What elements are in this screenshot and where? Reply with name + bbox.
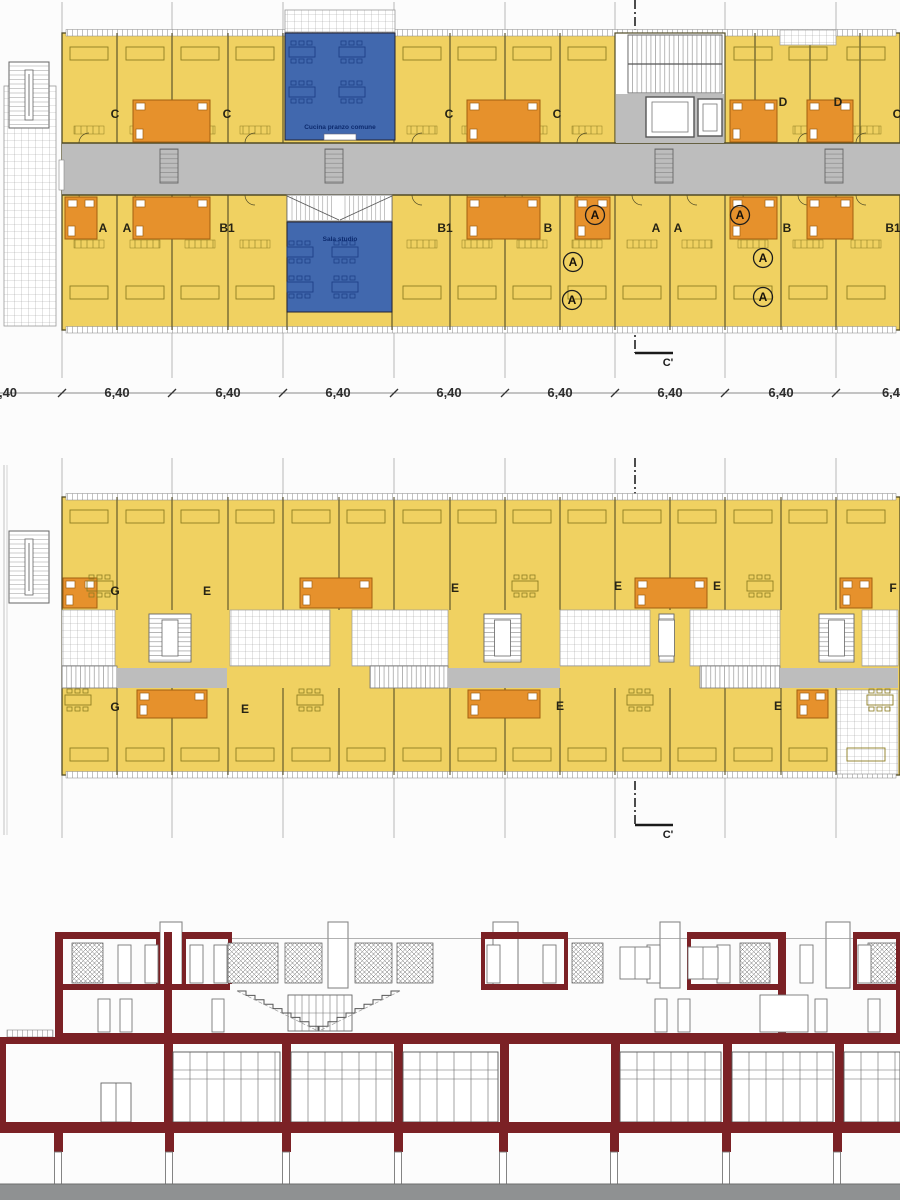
open-terrace: [690, 610, 780, 666]
bath-fixture: [66, 581, 75, 588]
curtain-wall: [173, 1052, 280, 1122]
drawing-canvas: CCCCDDCAAB1B1BAABB1GEEEEFGEEECucina pran…: [0, 0, 900, 1200]
cut-pier: [835, 1044, 844, 1122]
bath-fixture: [528, 200, 537, 207]
open-terrace: [230, 610, 330, 666]
bath-fixture: [68, 226, 75, 236]
bath-fixture: [140, 705, 147, 715]
room-label: B1: [219, 221, 235, 235]
pilotis-column: [395, 1152, 402, 1184]
bath-fixture: [816, 693, 825, 700]
gallery-stair-treads: [700, 666, 780, 688]
cut-pier: [282, 1044, 291, 1122]
dimension-label: 6,40: [325, 385, 350, 400]
window-band: [66, 772, 896, 779]
pilotis-column: [834, 1152, 841, 1184]
ground: [0, 1184, 900, 1200]
circled-a-icon: A: [736, 208, 745, 222]
corridor: [62, 143, 900, 195]
dimension-label: 6,40: [436, 385, 461, 400]
dimension-label: 6,40: [657, 385, 682, 400]
door: [214, 945, 227, 983]
open-terrace: [62, 610, 115, 666]
balcony-hatch: [780, 30, 836, 45]
wardrobe-shelf: [627, 240, 657, 248]
roof-slab: [687, 932, 785, 939]
bath-fixture: [733, 103, 742, 110]
wardrobe-shelf: [240, 240, 270, 248]
room-label: F: [889, 581, 896, 595]
open-terrace: [560, 610, 650, 666]
corridor-shaft: [825, 149, 843, 183]
stair-core: [659, 620, 675, 656]
dimension-label: 6,40: [768, 385, 793, 400]
bath-fixture: [195, 693, 204, 700]
floor-slab: [55, 984, 230, 990]
terrace-hatch: [285, 10, 395, 32]
bath-fixture: [841, 200, 850, 207]
bath-fixture: [841, 103, 850, 110]
bath-fixture: [68, 200, 77, 207]
room-label: B1: [885, 221, 900, 235]
room-label: C: [111, 107, 120, 121]
common-room-label: Sala studio: [323, 236, 358, 243]
curtain-wall: [620, 1052, 721, 1122]
curtain-wall: [403, 1052, 498, 1122]
room-label: E: [203, 584, 211, 598]
bath-fixture: [303, 581, 312, 588]
pilotis-cap: [282, 1133, 291, 1152]
room-label: C: [445, 107, 454, 121]
room-label: D: [779, 95, 788, 109]
pilotis-column: [611, 1152, 618, 1184]
window-band: [66, 30, 896, 37]
roof-tower: [826, 922, 850, 988]
door: [858, 945, 871, 983]
access-gallery: [448, 668, 560, 688]
room-label: B: [783, 221, 792, 235]
pilotis-column: [723, 1152, 730, 1184]
room-label: G: [110, 584, 119, 598]
room-label: A: [652, 221, 661, 235]
bath-fixture: [765, 200, 774, 207]
bath-fixture: [470, 103, 479, 110]
bath-fixture: [800, 705, 807, 715]
cut-pier: [723, 1044, 732, 1122]
cut-wall: [481, 932, 485, 984]
door: [800, 945, 813, 983]
wardrobe-shelf: [572, 240, 602, 248]
wardrobe-shelf: [682, 240, 712, 248]
door: [868, 999, 880, 1032]
bath-fixture: [140, 693, 149, 700]
cut-pier: [611, 1044, 620, 1122]
bath-fixture: [136, 200, 145, 207]
bath-fixture: [810, 226, 817, 236]
bath-fixture: [733, 129, 740, 139]
wardrobe-shelf: [793, 240, 823, 248]
cut-pier: [164, 932, 172, 1033]
bath-fixture: [810, 129, 817, 139]
stair-core: [162, 620, 178, 656]
pilotis-cap: [610, 1133, 619, 1152]
bath-fixture: [638, 595, 645, 605]
wardrobe-shelf: [462, 240, 492, 248]
window-band: [66, 494, 896, 501]
wardrobe-shelf: [185, 240, 215, 248]
curtain-wall: [732, 1052, 833, 1122]
room-label: G: [110, 700, 119, 714]
pilotis-column: [500, 1152, 507, 1184]
dimension-label: 6,4: [882, 385, 900, 400]
roof-tower: [660, 922, 680, 988]
room-label: C: [223, 107, 232, 121]
cross-section: [0, 922, 900, 1200]
bath-fixture: [810, 200, 819, 207]
roof-slab: [55, 932, 160, 939]
stair-flights: [287, 195, 392, 221]
bath-fixture: [578, 200, 587, 207]
pilotis-cap: [394, 1133, 403, 1152]
screen-window: [355, 943, 392, 983]
open-terrace: [352, 610, 448, 666]
room-label: A: [123, 221, 132, 235]
screen-window: [285, 943, 322, 983]
bath-fixture: [85, 200, 94, 207]
dimension-label: 6,40: [104, 385, 129, 400]
pilotis-column: [283, 1152, 290, 1184]
circled-a-icon: A: [759, 251, 768, 265]
bath-fixture: [843, 595, 850, 605]
door: [118, 945, 131, 983]
room-label: C: [893, 107, 900, 121]
bath-fixture: [471, 705, 478, 715]
pilotis-cap: [722, 1133, 731, 1152]
bath-fixture: [528, 693, 537, 700]
wardrobe-shelf: [517, 240, 547, 248]
bath-fixture: [136, 129, 143, 139]
room-label: C: [553, 107, 562, 121]
section-cut-label: C': [663, 829, 674, 841]
bath-fixture: [528, 103, 537, 110]
curtain-wall: [291, 1052, 392, 1122]
elevator: [698, 99, 722, 136]
bath-fixture: [860, 581, 869, 588]
dimension-label: ,40: [0, 385, 17, 400]
pilotis-column: [166, 1152, 173, 1184]
room-label: E: [556, 699, 564, 713]
cut-pier: [0, 1044, 6, 1122]
bath-fixture: [471, 693, 480, 700]
wardrobe-shelf: [738, 240, 768, 248]
screen-window: [397, 943, 433, 983]
built-in-unit: [760, 995, 808, 1032]
bath-fixture: [638, 581, 647, 588]
roof-slab: [853, 932, 900, 939]
gallery-stair-treads: [370, 666, 448, 688]
circled-a-icon: A: [569, 255, 578, 269]
gallery-stair-treads: [62, 666, 117, 688]
floor-slab: [481, 984, 568, 990]
screen-window: [72, 943, 103, 983]
bath-fixture: [198, 200, 207, 207]
door: [212, 999, 224, 1032]
stair-core: [495, 620, 511, 656]
door: [487, 945, 500, 983]
access-gallery: [117, 668, 227, 688]
cut-wall: [853, 932, 857, 984]
door: [717, 945, 730, 983]
terrace-slab: [0, 1037, 55, 1044]
cut-pier: [55, 932, 63, 1033]
pilotis-cap: [165, 1133, 174, 1152]
wardrobe-shelf: [74, 240, 104, 248]
bath-fixture: [360, 581, 369, 588]
door: [190, 945, 203, 983]
door-opening: [324, 134, 356, 140]
bath-fixture: [470, 226, 477, 236]
pilotis-cap: [499, 1133, 508, 1152]
pilotis-column: [55, 1152, 62, 1184]
roof-tower: [328, 922, 348, 988]
elevator: [646, 97, 694, 137]
door: [145, 945, 158, 983]
bath-fixture: [66, 595, 73, 605]
terrace-door-opening: [59, 160, 64, 190]
floor-slab: [687, 984, 785, 990]
access-gallery: [780, 668, 898, 688]
section-cut-label: C': [663, 357, 674, 369]
window-band: [66, 327, 896, 334]
bath-fixture: [765, 103, 774, 110]
door: [120, 999, 132, 1032]
bath-fixture: [136, 103, 145, 110]
lower-floor-slab: [0, 1122, 900, 1133]
circled-a-icon: A: [591, 208, 600, 222]
bath-fixture: [470, 200, 479, 207]
room-label: E: [614, 579, 622, 593]
room-label: A: [99, 221, 108, 235]
bath-fixture: [303, 595, 310, 605]
pilotis-cap: [833, 1133, 842, 1152]
screen-window: [572, 943, 603, 983]
wardrobe-shelf: [851, 240, 881, 248]
dimension-label: 6,40: [215, 385, 240, 400]
bath-fixture: [800, 693, 809, 700]
door: [678, 999, 690, 1032]
room-label: E: [451, 581, 459, 595]
cut-wall: [564, 932, 568, 984]
cut-pier: [394, 1044, 403, 1122]
door: [543, 945, 556, 983]
bath-fixture: [470, 129, 477, 139]
upper-gallery-floor-plan: [4, 465, 900, 835]
wardrobe-shelf: [407, 240, 437, 248]
bath-fixture: [85, 581, 94, 588]
roof-slab: [481, 932, 568, 939]
cut-pier: [500, 1044, 509, 1122]
cut-wall: [182, 932, 186, 984]
curtain-wall: [844, 1052, 900, 1122]
circled-a-icon: A: [759, 290, 768, 304]
wardrobe-shelf: [130, 240, 160, 248]
bath-fixture: [733, 226, 740, 236]
main-floor-slab: [55, 1033, 900, 1044]
room-label: D: [834, 95, 843, 109]
terrace-railing: [7, 1030, 53, 1037]
bath-fixture: [136, 226, 143, 236]
pilotis-cap: [54, 1133, 63, 1152]
cut-pier: [896, 932, 900, 1033]
screen-window: [740, 943, 770, 983]
stair-core: [829, 620, 845, 656]
circled-a-icon: A: [568, 293, 577, 307]
corridor-shaft: [325, 149, 343, 183]
bath-fixture: [578, 226, 585, 236]
open-terrace: [862, 610, 898, 666]
bath-fixture: [810, 103, 819, 110]
dimension-label: 6,40: [547, 385, 572, 400]
screen-window: [868, 943, 898, 983]
room-label: E: [241, 702, 249, 716]
room-label: A: [674, 221, 683, 235]
corridor-shaft: [160, 149, 178, 183]
cut-pier: [164, 1044, 173, 1122]
corridor-shaft: [655, 149, 673, 183]
common-room-label: Cucina pranzo comune: [304, 124, 376, 131]
bath-fixture: [695, 581, 704, 588]
room-label: E: [713, 579, 721, 593]
bath-fixture: [843, 581, 852, 588]
architectural-drawing-sheet: CCCCDDCAAB1B1BAABB1GEEEEFGEEECucina pran…: [0, 0, 900, 1200]
room-label: B: [544, 221, 553, 235]
bath-fixture: [198, 103, 207, 110]
room-label: E: [774, 699, 782, 713]
roof-slab: [182, 932, 232, 939]
door: [655, 999, 667, 1032]
screen-window: [228, 943, 278, 983]
door: [98, 999, 110, 1032]
room-label: B1: [437, 221, 453, 235]
door: [815, 999, 827, 1032]
floor-slab: [853, 984, 900, 990]
